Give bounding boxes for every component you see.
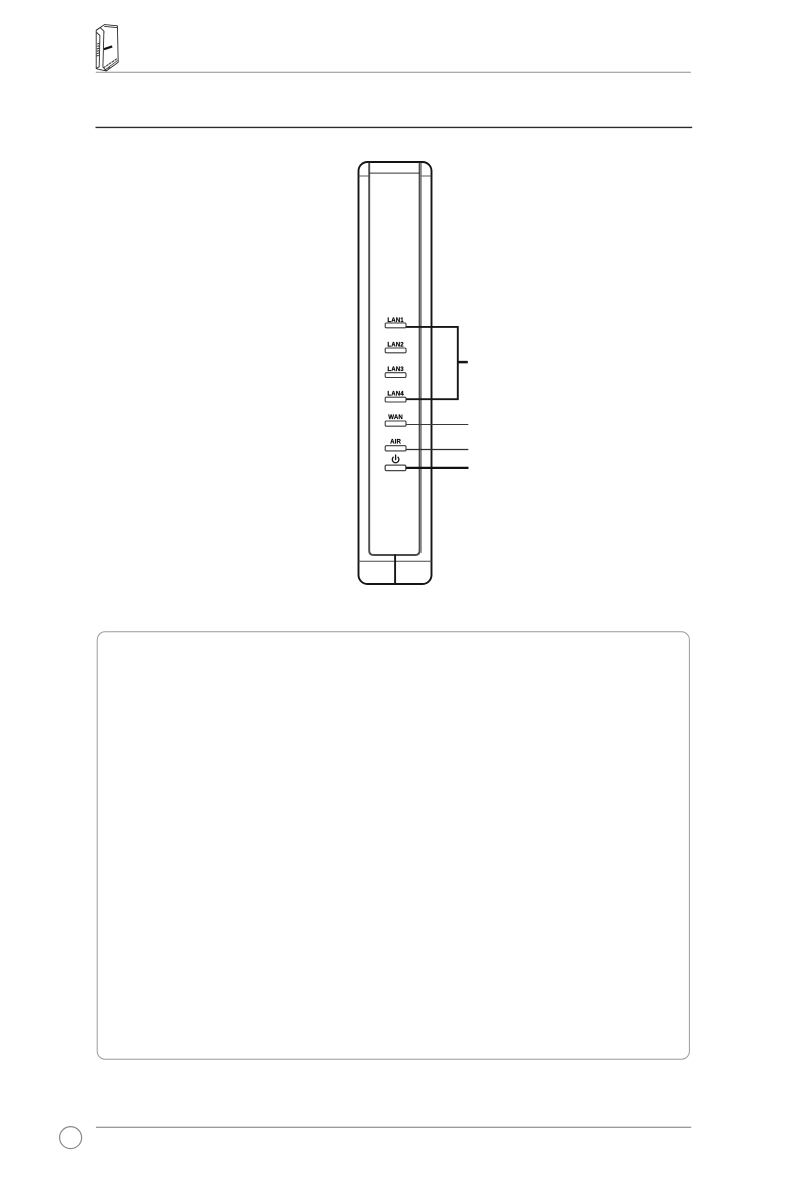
svg-text:LAN2: LAN2	[387, 341, 404, 348]
svg-text:WAN: WAN	[388, 414, 403, 421]
svg-text:AIR: AIR	[390, 438, 401, 445]
svg-text:LAN4: LAN4	[387, 391, 404, 398]
